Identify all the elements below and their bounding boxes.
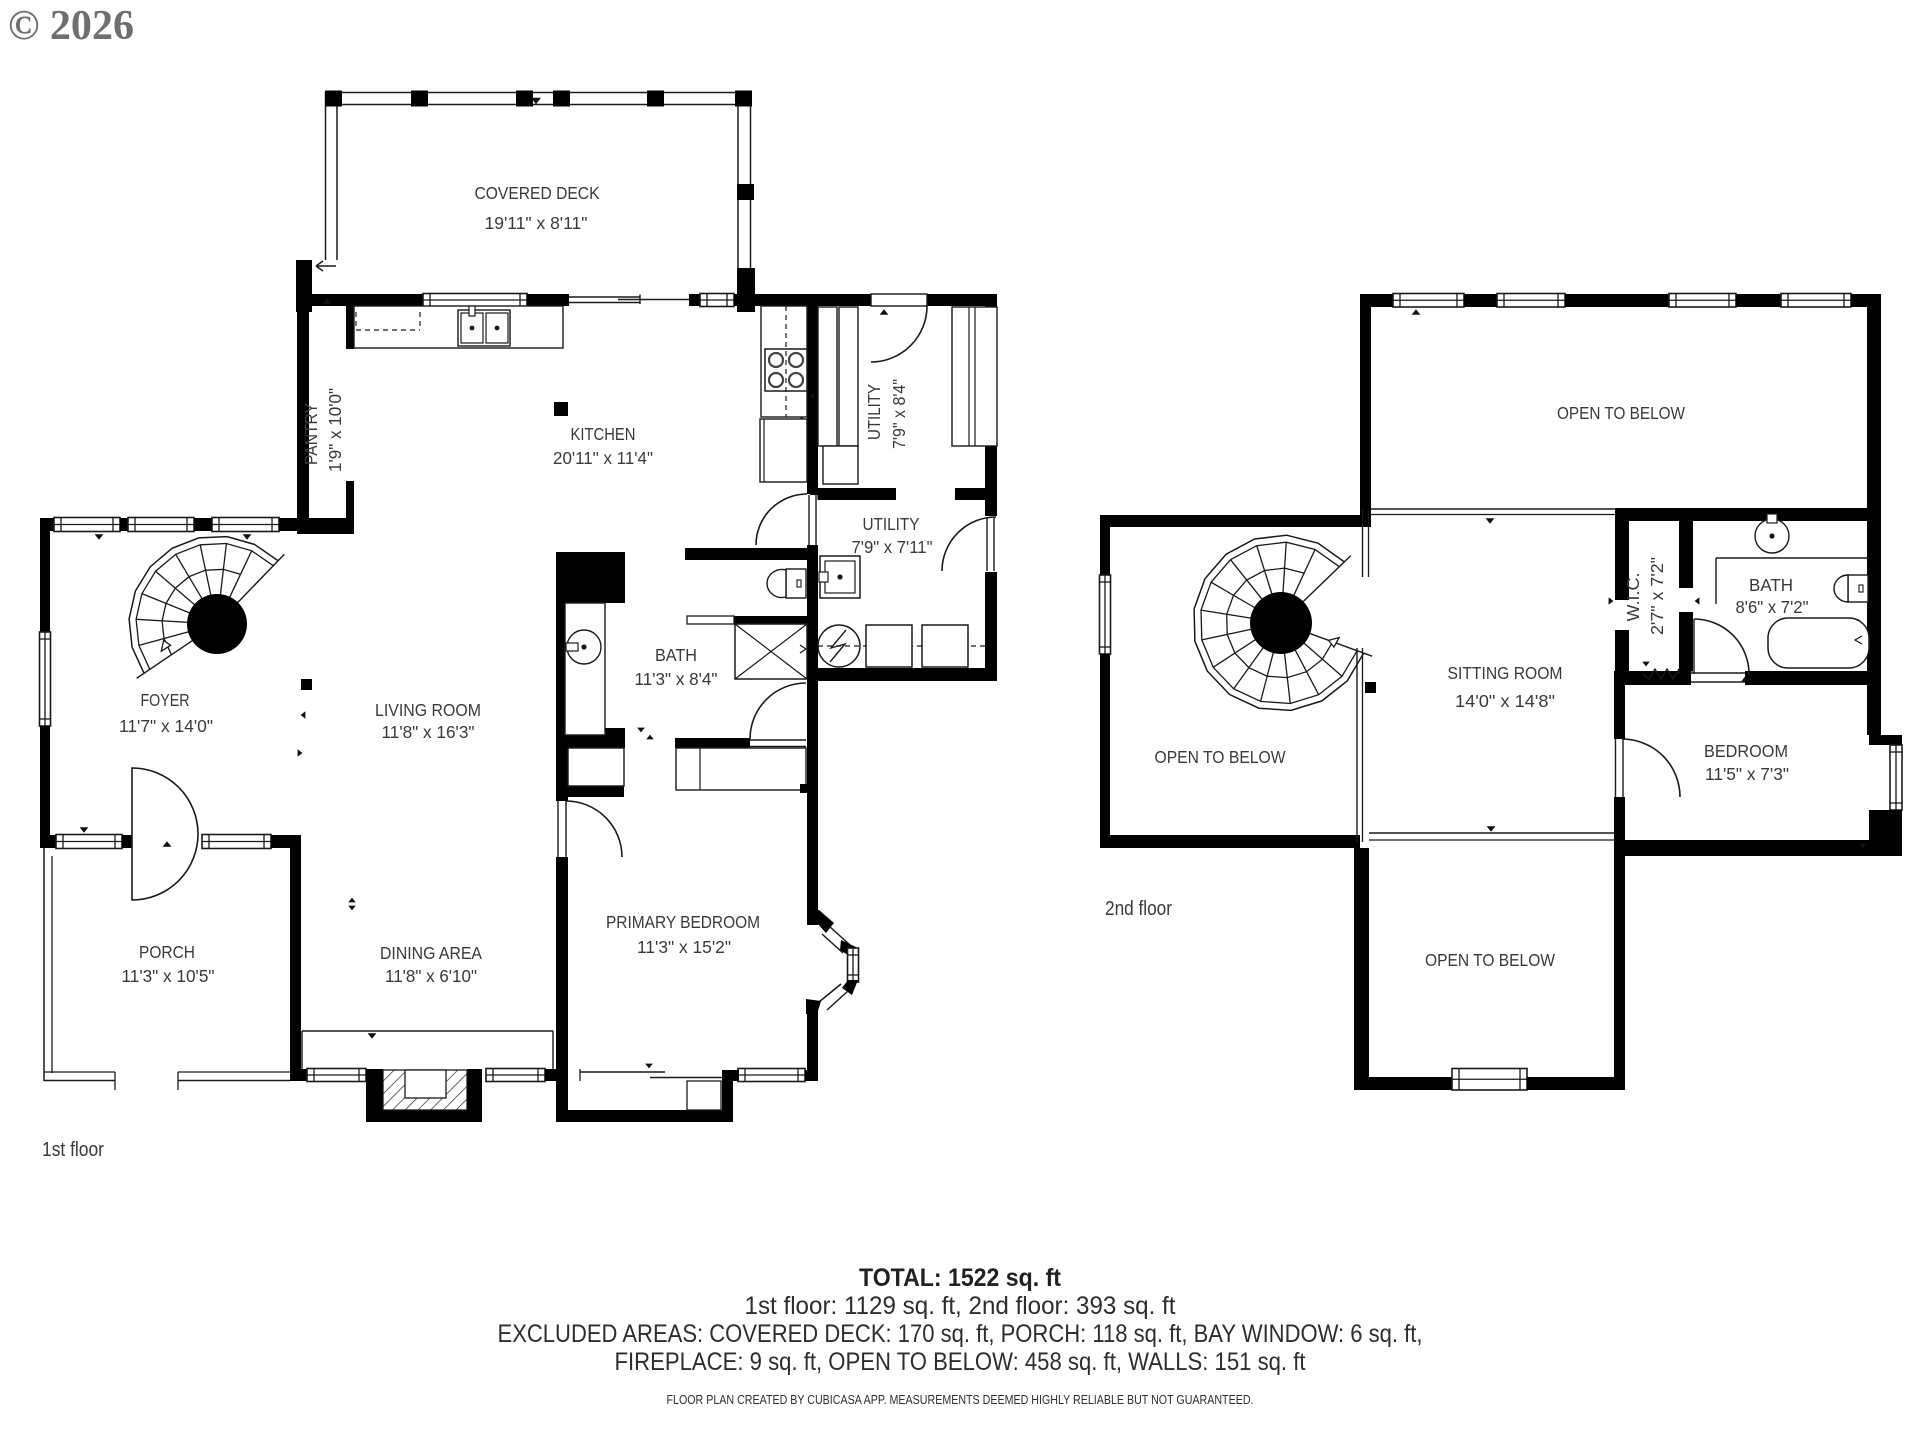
svg-text:1'9" x 10'0": 1'9" x 10'0" — [325, 388, 345, 472]
svg-text:2nd floor: 2nd floor — [1105, 898, 1172, 920]
svg-text:20'11" x 11'4": 20'11" x 11'4" — [553, 448, 653, 468]
svg-text:TOTAL: 1522 sq. ft: TOTAL: 1522 sq. ft — [859, 1264, 1062, 1292]
svg-text:PORCH: PORCH — [139, 942, 195, 962]
svg-text:11'8" x 6'10": 11'8" x 6'10" — [385, 966, 477, 986]
svg-text:BATH: BATH — [655, 645, 697, 665]
svg-text:7'9" x 7'11": 7'9" x 7'11" — [852, 537, 933, 557]
svg-text:OPEN TO BELOW: OPEN TO BELOW — [1557, 403, 1685, 423]
svg-text:W.I.C.: W.I.C. — [1623, 573, 1643, 622]
svg-text:EXCLUDED AREAS: COVERED DECK:: EXCLUDED AREAS: COVERED DECK: 170 sq. ft… — [498, 1320, 1423, 1348]
svg-text:© 2026: © 2026 — [8, 3, 134, 49]
svg-text:FIREPLACE: 9 sq. ft, OPEN TO B: FIREPLACE: 9 sq. ft, OPEN TO BELOW: 458 … — [615, 1348, 1306, 1376]
svg-text:1st floor: 1st floor — [42, 1139, 104, 1161]
svg-text:14'0" x 14'8": 14'0" x 14'8" — [1455, 691, 1555, 711]
svg-text:DINING AREA: DINING AREA — [380, 943, 482, 963]
svg-text:KITCHEN: KITCHEN — [571, 424, 636, 444]
svg-text:11'3" x 8'4": 11'3" x 8'4" — [635, 669, 718, 689]
svg-text:8'6" x 7'2": 8'6" x 7'2" — [1736, 597, 1809, 617]
svg-text:OPEN TO BELOW: OPEN TO BELOW — [1425, 950, 1555, 970]
svg-text:2'7" x 7'2": 2'7" x 7'2" — [1647, 557, 1667, 635]
svg-text:BEDROOM: BEDROOM — [1704, 741, 1788, 761]
svg-text:PRIMARY BEDROOM: PRIMARY BEDROOM — [606, 912, 760, 932]
svg-text:COVERED DECK: COVERED DECK — [475, 183, 600, 203]
svg-text:LIVING ROOM: LIVING ROOM — [375, 700, 481, 720]
svg-text:FLOOR PLAN CREATED BY CUBICASA: FLOOR PLAN CREATED BY CUBICASA APP. MEAS… — [667, 1392, 1254, 1407]
svg-text:11'3" x 10'5": 11'3" x 10'5" — [122, 966, 215, 986]
svg-text:1st floor: 1129 sq. ft, 2nd fl: 1st floor: 1129 sq. ft, 2nd floor: 393 s… — [745, 1292, 1176, 1320]
svg-text:FOYER: FOYER — [141, 690, 190, 710]
svg-text:11'5" x 7'3": 11'5" x 7'3" — [1705, 764, 1789, 784]
svg-text:11'7" x 14'0": 11'7" x 14'0" — [119, 716, 213, 736]
svg-text:OPEN TO BELOW: OPEN TO BELOW — [1155, 747, 1286, 767]
svg-text:7'9" x 8'4": 7'9" x 8'4" — [889, 379, 909, 449]
svg-text:11'3" x 15'2": 11'3" x 15'2" — [637, 937, 731, 957]
svg-text:UTILITY: UTILITY — [863, 514, 920, 534]
svg-text:11'8" x 16'3": 11'8" x 16'3" — [382, 722, 475, 742]
svg-text:PANTRY: PANTRY — [301, 403, 321, 465]
svg-text:UTILITY: UTILITY — [864, 384, 884, 440]
svg-text:19'11" x 8'11": 19'11" x 8'11" — [485, 213, 588, 233]
svg-text:BATH: BATH — [1749, 575, 1793, 595]
svg-text:SITTING ROOM: SITTING ROOM — [1448, 663, 1563, 683]
